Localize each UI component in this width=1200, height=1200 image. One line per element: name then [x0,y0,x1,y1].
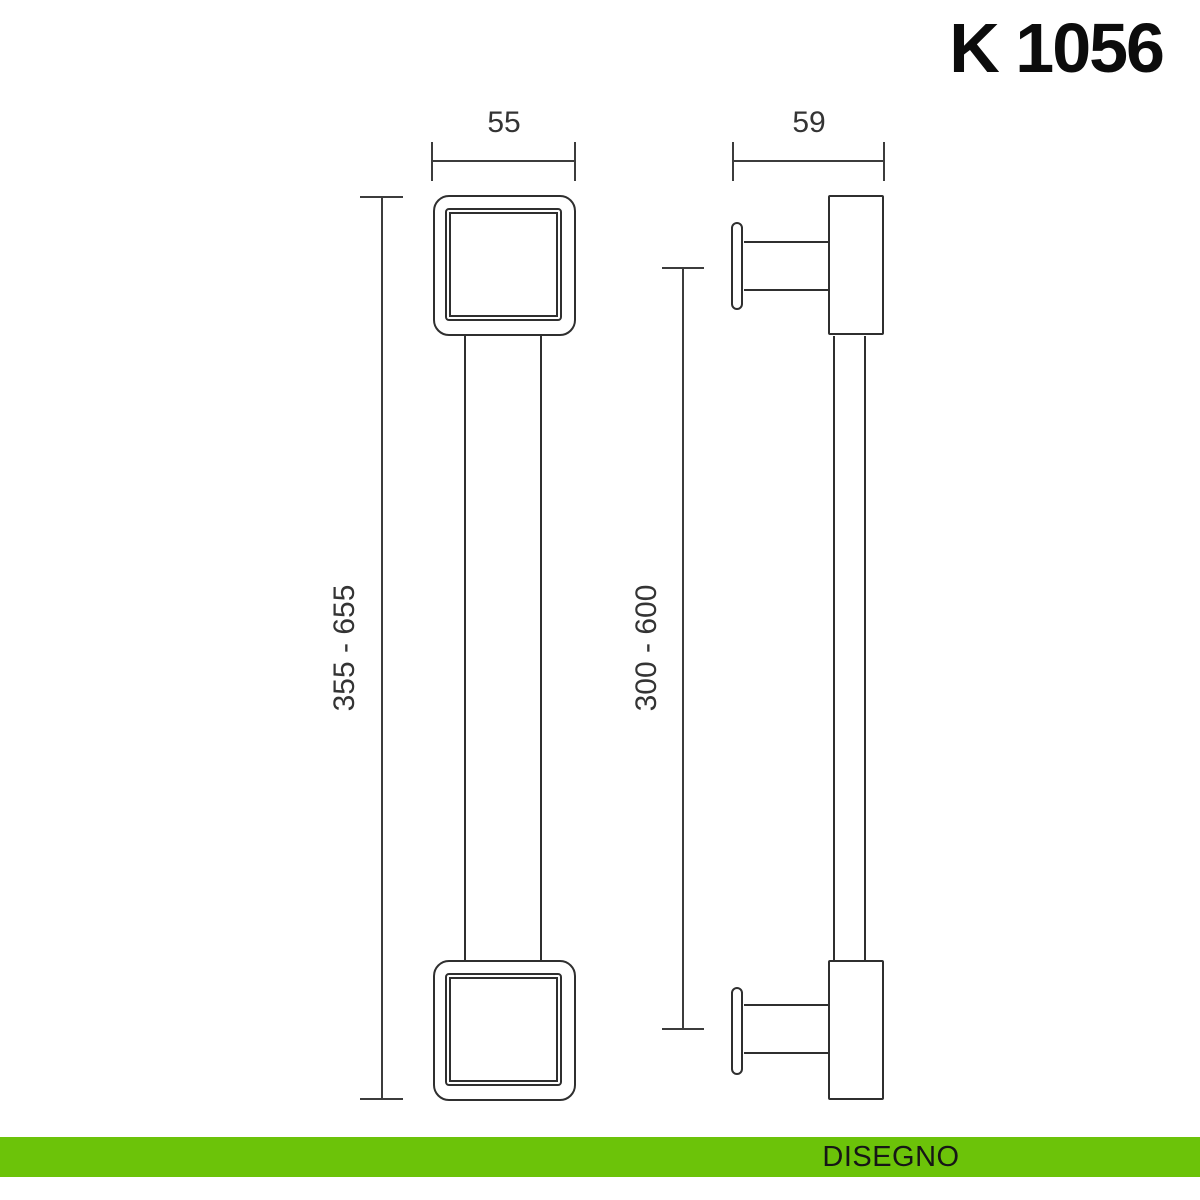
side-depth-dimension-line [733,160,885,162]
side-view: 59 300 - 600 [0,0,1200,1200]
handle-bottom-cap-side [828,960,884,1100]
footer-section-label: DISEGNO [822,1137,959,1177]
top-wall-flange-side [731,222,743,310]
handle-bar-side [833,336,866,962]
bottom-mount-neck-side [744,1004,828,1054]
footer-accent-bar: DISEGNO [0,1137,1200,1177]
bottom-wall-flange-side [731,987,743,1075]
side-centers-dimension-tick-top [662,267,704,269]
side-centers-dimension-label: 300 - 600 [630,585,664,712]
technical-drawing-page: K 1056 55 355 - 655 59 300 - 600 [0,0,1200,1200]
side-centers-dimension-line [682,268,684,1030]
side-depth-dimension-label: 59 [733,106,885,140]
top-mount-neck-side [744,241,828,291]
side-depth-dimension-tick-right [883,142,885,181]
handle-top-cap-side [828,195,884,335]
side-depth-dimension-tick-left [732,142,734,181]
side-centers-dimension-tick-bottom [662,1028,704,1030]
